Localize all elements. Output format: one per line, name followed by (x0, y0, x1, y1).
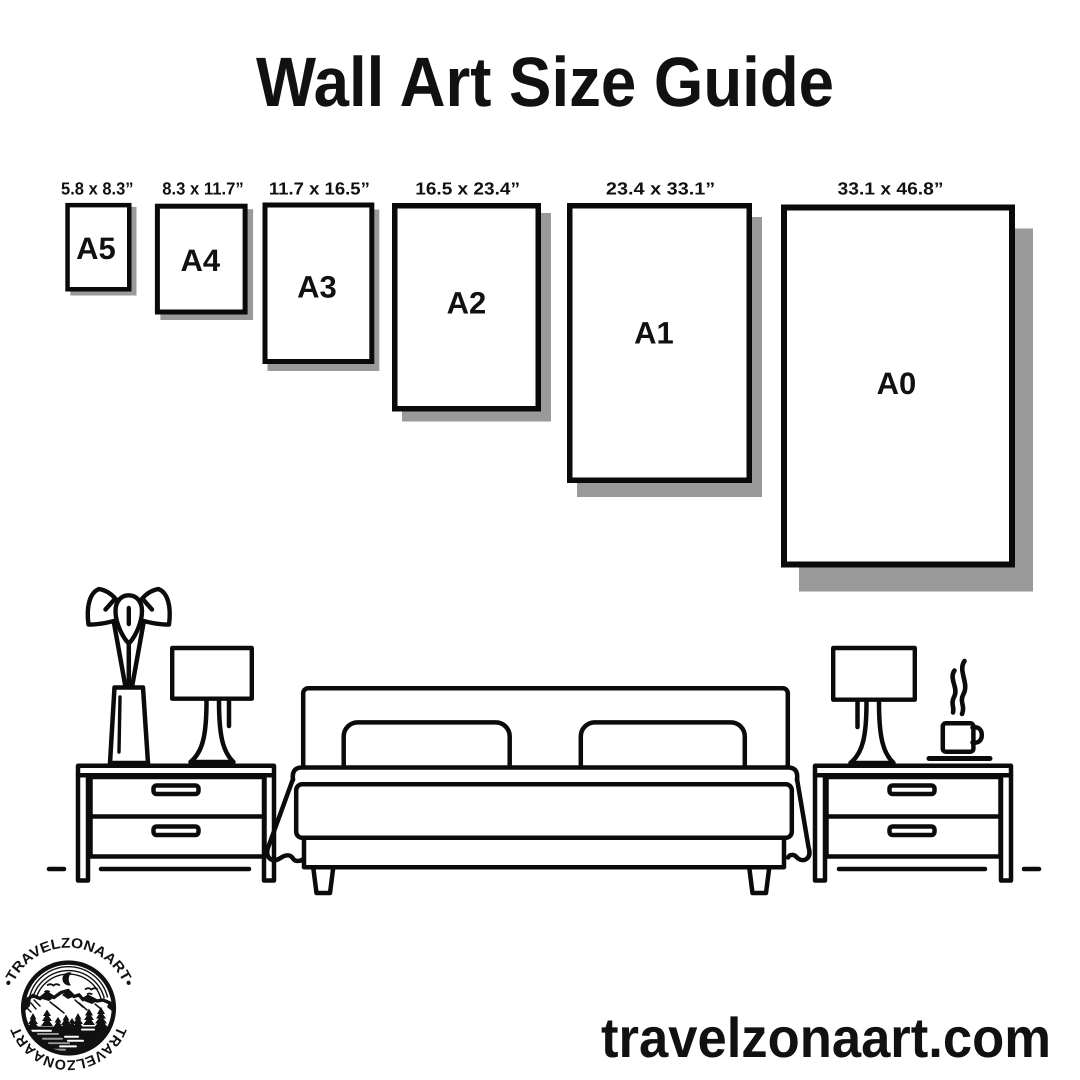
svg-text:11.7 x 16.5”: 11.7 x 16.5” (269, 178, 370, 198)
svg-text:8.3 x 11.7”: 8.3 x 11.7” (162, 178, 244, 198)
svg-text:A1: A1 (634, 316, 674, 351)
svg-text:16.5 x 23.4”: 16.5 x 23.4” (415, 178, 520, 198)
svg-text:23.4 x 33.1”: 23.4 x 33.1” (606, 178, 715, 198)
svg-text:A4: A4 (180, 243, 220, 278)
svg-text:A5: A5 (76, 231, 116, 266)
svg-text:A2: A2 (447, 286, 487, 321)
svg-text:33.1 x 46.8”: 33.1 x 46.8” (838, 178, 944, 198)
svg-text:A0: A0 (877, 366, 917, 401)
svg-text:Wall Art Size Guide: Wall Art Size Guide (256, 43, 834, 121)
svg-text:A3: A3 (297, 270, 337, 305)
svg-text:travelzonaart.com: travelzonaart.com (601, 1006, 1051, 1069)
svg-text:5.8 x 8.3”: 5.8 x 8.3” (61, 178, 134, 198)
